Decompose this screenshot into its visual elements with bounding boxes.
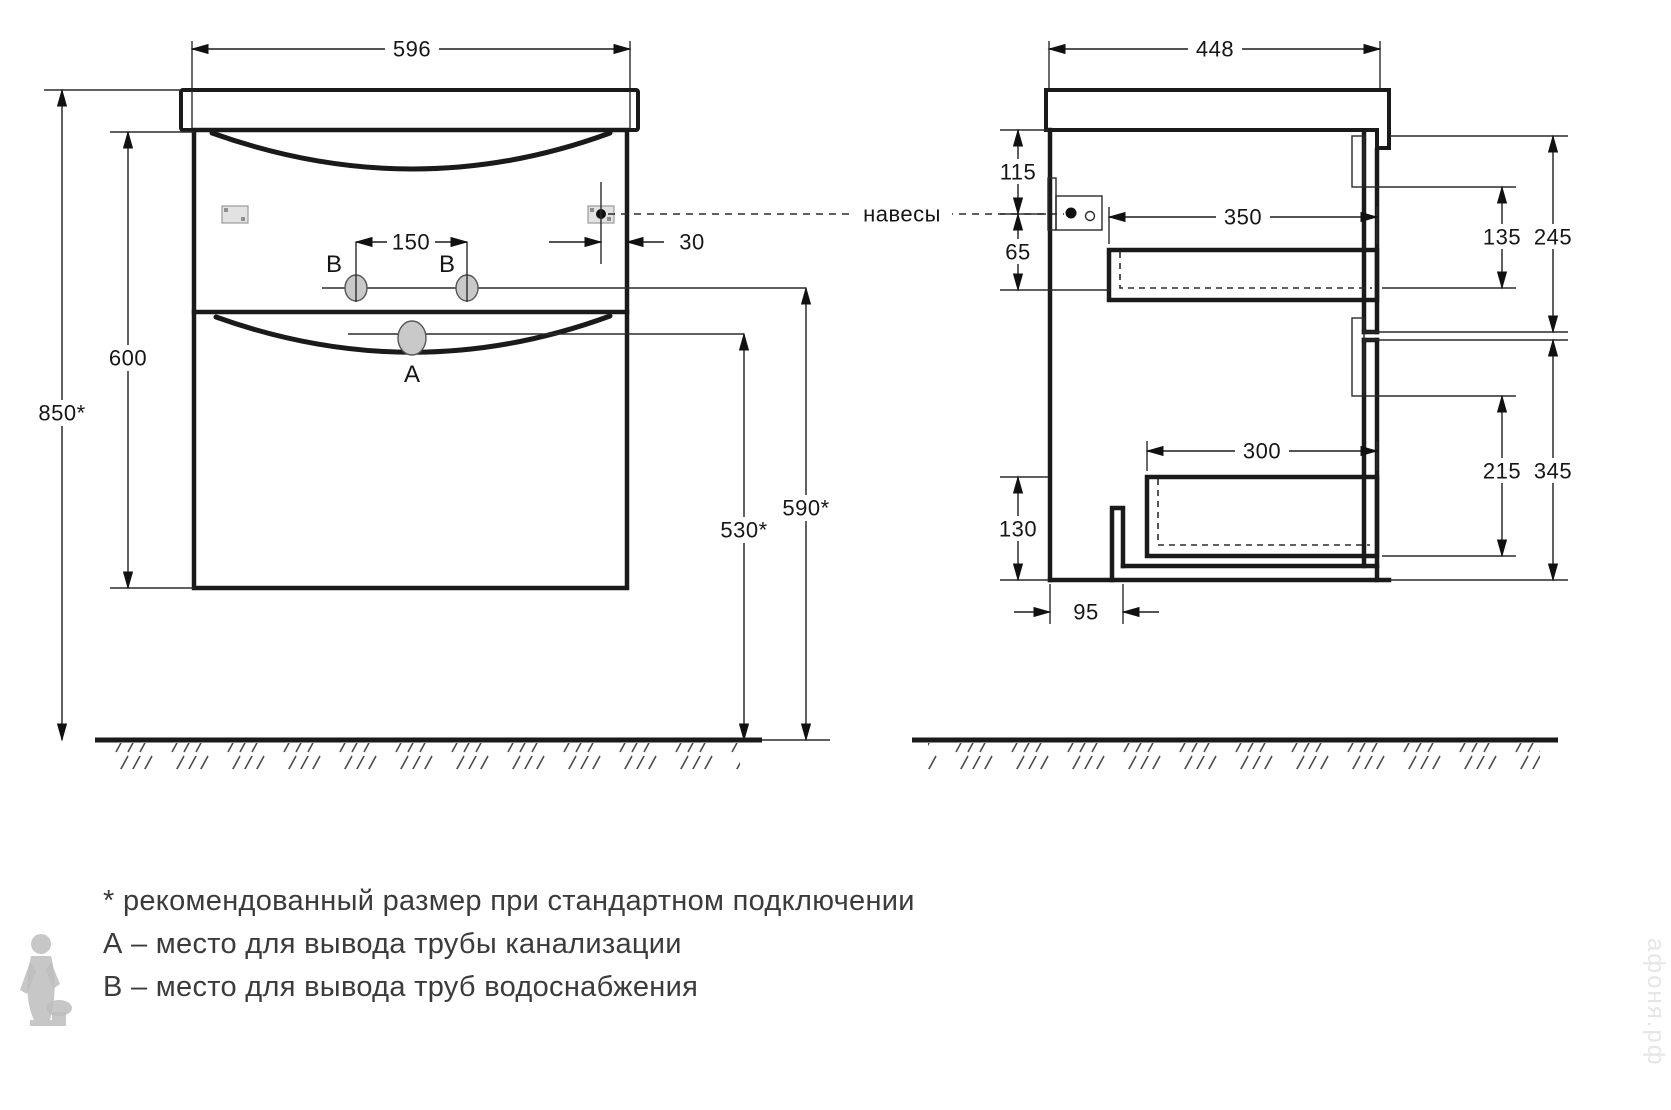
dim-245: 245 [1530,136,1576,332]
hinges-callout: навесы [608,201,1064,228]
svg-text:590*: 590* [782,496,829,521]
hinges-callout-label: навесы [863,202,941,227]
legend: * рекомендованный размер при стандартном… [103,885,915,1003]
side-countertop [1046,90,1389,148]
svg-text:850*: 850* [38,401,85,426]
dim-350: 350 [1109,204,1377,244]
svg-text:300: 300 [1243,439,1281,464]
dim-95: 95 [1014,584,1159,625]
svg-text:30: 30 [679,230,704,255]
dim-215: 215 [1479,396,1525,556]
plumber-logo-watermark [20,934,72,1026]
dim-65: 65 [1000,214,1110,290]
sewer-hole [398,321,426,355]
legend-b: В – место для вывода труб водоснабжения [103,971,698,1003]
dim-135: 135 [1479,187,1525,288]
site-watermark: афоня.рф [1642,938,1669,1066]
svg-text:135: 135 [1483,225,1521,250]
dim-115: 115 [996,130,1048,214]
front-cabinet-body [194,130,627,588]
front-countertop [181,90,638,130]
label-a: A [404,361,420,388]
svg-text:95: 95 [1073,600,1098,625]
hinge-plate-left [222,206,248,223]
svg-text:596: 596 [393,37,431,62]
dim-345: 345 [1530,340,1576,580]
label-b-left: B [326,251,342,278]
ground-left [95,740,830,769]
dim-850: 850* [30,90,181,740]
front-sink-curve-top [212,133,610,169]
legend-a: А – место для вывода трубы канализации [103,928,682,960]
side-hinge-bracket [1048,178,1102,230]
dim-590: 590* [773,288,839,740]
svg-text:150: 150 [392,230,430,255]
dim-448: 448 [1049,36,1380,88]
dim-130: 130 [995,477,1048,580]
svg-text:115: 115 [1000,160,1037,185]
svg-text:130: 130 [999,517,1037,542]
dim-300: 300 [1147,438,1377,471]
dim-530: 530* [711,334,777,740]
svg-text:600: 600 [109,346,147,371]
front-view: B B A 596 600 850* [30,36,839,740]
vanity-dimension-drawing: B B A 596 600 850* [0,0,1671,1110]
ground-right [912,740,1558,769]
lower-drawer-box [1147,477,1377,556]
svg-text:345: 345 [1534,459,1572,484]
svg-text:448: 448 [1196,37,1234,62]
side-view: 448 115 65 350 [995,36,1576,625]
back-notch [1112,508,1123,580]
svg-text:245: 245 [1534,225,1572,250]
dim-600: 600 [98,132,194,588]
svg-text:65: 65 [1005,240,1030,265]
svg-text:350: 350 [1224,205,1262,230]
dim-596: 596 [192,36,630,88]
legend-note: * рекомендованный размер при стандартном… [103,885,915,917]
label-b-right: B [439,251,455,278]
upper-drawer-box [1109,250,1377,300]
svg-text:215: 215 [1483,459,1521,484]
drawing-canvas: B B A 596 600 850* [0,0,1671,1110]
svg-text:530*: 530* [720,518,767,543]
